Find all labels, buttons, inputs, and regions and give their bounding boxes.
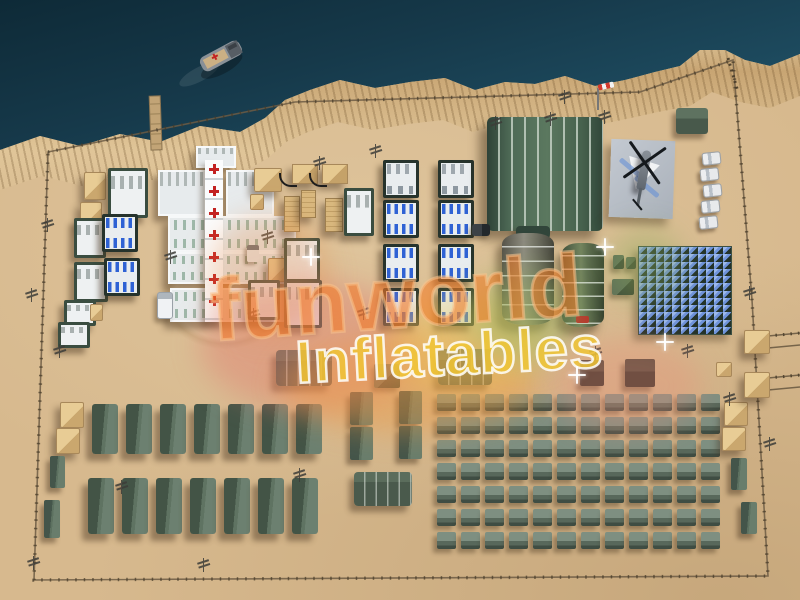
supply-crate [254, 168, 282, 192]
solar-panel [639, 327, 647, 334]
barrack-tent [228, 404, 254, 454]
solar-panel [656, 305, 664, 312]
camp-tent [605, 440, 624, 457]
solar-panel [706, 247, 714, 254]
camp-tent [533, 463, 552, 480]
solar-panel [647, 254, 655, 261]
helipad [609, 139, 676, 219]
ops-tent [108, 168, 148, 218]
light-pole [557, 90, 571, 104]
camp-tent [461, 417, 480, 434]
supply-crate [84, 172, 106, 200]
barrack-tent [194, 404, 220, 454]
solar-panel [706, 298, 714, 305]
camp-tent [533, 486, 552, 503]
solar-panel [647, 305, 655, 312]
light-pole [597, 110, 611, 124]
camp-tent [605, 463, 624, 480]
sparkle-star [656, 333, 674, 351]
solar-panel [698, 283, 706, 290]
solar-panel [714, 298, 722, 305]
green-container [626, 257, 636, 269]
camp-tent [509, 440, 528, 457]
camp-tent [533, 440, 552, 457]
solar-panel [723, 305, 731, 312]
camp-tent [557, 509, 576, 526]
red-cross-marking [209, 186, 219, 196]
camp-tent [629, 486, 648, 503]
solar-panel [681, 298, 689, 305]
solar-panel [672, 327, 680, 334]
solar-panel [647, 262, 655, 269]
camp-tent [557, 394, 576, 411]
solar-panel [714, 254, 722, 261]
solar-panel [698, 254, 706, 261]
solar-panel [639, 262, 647, 269]
camp-tent [533, 532, 552, 549]
light-pole [312, 156, 326, 170]
solar-panel [681, 312, 689, 319]
small-tent [50, 456, 65, 488]
camp-tent [677, 532, 696, 549]
camp-tent [485, 532, 504, 549]
solar-panel [672, 276, 680, 283]
hospital-corridor [205, 160, 223, 322]
solar-panel [672, 262, 680, 269]
solar-panel [714, 327, 722, 334]
barrack-tent [156, 478, 182, 534]
solar-panel [656, 262, 664, 269]
solar-panel [664, 247, 672, 254]
light-pole [52, 344, 66, 358]
solar-panel [647, 291, 655, 298]
solar-panel [714, 247, 722, 254]
dark-container [580, 360, 604, 386]
solar-panel [698, 298, 706, 305]
solar-panel [656, 247, 664, 254]
camp-tent [509, 417, 528, 434]
camp-tent [461, 509, 480, 526]
green-container [612, 279, 634, 295]
small-tent [44, 500, 60, 538]
solar-panel [723, 298, 731, 305]
camp-tent [677, 509, 696, 526]
solar-panel [698, 262, 706, 269]
solar-panel [689, 262, 697, 269]
camp-tent [461, 532, 480, 549]
light-pole [762, 437, 776, 451]
camp-tent [605, 532, 624, 549]
solar-panel [647, 298, 655, 305]
camp-tent [437, 394, 456, 411]
medical-bed-tent [102, 214, 138, 252]
solar-panel [723, 276, 731, 283]
solar-panel [639, 320, 647, 327]
solar-panel [689, 269, 697, 276]
barrack-tent [190, 478, 216, 534]
camp-tent [701, 417, 720, 434]
supply-crate [722, 427, 746, 451]
solar-panel [714, 269, 722, 276]
barrack-tent [92, 404, 118, 454]
solar-panel [647, 276, 655, 283]
camp-tent [677, 417, 696, 434]
storage-hangar [487, 117, 603, 231]
solar-panel [647, 283, 655, 290]
solar-panel [706, 276, 714, 283]
command-tent [438, 160, 474, 198]
camp-tent [437, 440, 456, 457]
camp-tent [701, 440, 720, 457]
green-container [613, 255, 624, 269]
light-pole [40, 218, 54, 232]
camp-tent [461, 463, 480, 480]
camp-tent [533, 394, 552, 411]
solar-panel [706, 262, 714, 269]
solar-panel [664, 262, 672, 269]
white-suv [702, 183, 722, 198]
solar-panel [689, 320, 697, 327]
solar-panel [689, 298, 697, 305]
camp-tent [533, 417, 552, 434]
solar-panel [664, 312, 672, 319]
solar-panel [672, 291, 680, 298]
camp-tent [557, 417, 576, 434]
cargo-pallet [284, 196, 300, 232]
camp-tent [461, 440, 480, 457]
solar-panel [664, 283, 672, 290]
solar-panel [672, 312, 680, 319]
solar-panel [681, 327, 689, 334]
windsock-pole [597, 88, 599, 110]
solar-panel [723, 327, 731, 334]
light-pole [114, 480, 128, 494]
camp-tent [557, 532, 576, 549]
solar-panel [656, 269, 664, 276]
solar-panel [664, 276, 672, 283]
red-cross-marking [209, 252, 219, 262]
solar-panel [689, 283, 697, 290]
light-pole [163, 250, 177, 264]
solar-panel [689, 247, 697, 254]
solar-panel [689, 305, 697, 312]
solar-panel [714, 262, 722, 269]
solar-panel [723, 254, 731, 261]
barrack-tent [292, 478, 318, 534]
light-pole [368, 144, 382, 158]
solar-panel [714, 283, 722, 290]
camp-tent [653, 486, 672, 503]
solar-panel [672, 298, 680, 305]
camp-tent [485, 440, 504, 457]
solar-panel [672, 247, 680, 254]
solar-panel [681, 291, 689, 298]
light-pole [260, 230, 274, 244]
solar-panel [698, 312, 706, 319]
solar-panel [672, 283, 680, 290]
solar-panel [647, 312, 655, 319]
light-pole [680, 344, 694, 358]
camp-tent [437, 532, 456, 549]
solar-panel [639, 291, 647, 298]
light-pole [26, 556, 40, 570]
solar-panel [723, 320, 731, 327]
barrack-tent [258, 478, 284, 534]
white-suv [700, 199, 720, 214]
solar-panel [656, 327, 664, 334]
medical-tent [284, 280, 322, 328]
solar-panel [681, 283, 689, 290]
camp-tent [701, 463, 720, 480]
camp-tent [485, 463, 504, 480]
squad-tent [350, 392, 373, 425]
barrack-tent [262, 404, 288, 454]
medical-bed-tent [438, 200, 474, 238]
white-suv [699, 167, 719, 182]
solar-panel [639, 283, 647, 290]
command-tent [383, 160, 419, 198]
camp-aerial-render: funworld Inflatables [0, 0, 800, 600]
camp-tent [629, 417, 648, 434]
solar-panel [681, 276, 689, 283]
forklift [90, 304, 103, 321]
solar-panel [647, 327, 655, 334]
solar-panel [656, 312, 664, 319]
solar-panel [639, 269, 647, 276]
arched-hangar [562, 243, 604, 327]
solar-panel [664, 298, 672, 305]
solar-panel [723, 312, 731, 319]
red-cross-marking [209, 296, 219, 306]
camp-tent [581, 486, 600, 503]
solar-panel [647, 247, 655, 254]
light-pole [488, 116, 502, 130]
camp-tent [581, 532, 600, 549]
helicopter [617, 139, 667, 217]
mess-tent [276, 350, 332, 386]
camp-tent [701, 486, 720, 503]
camp-tent [629, 440, 648, 457]
light-pole [722, 392, 736, 406]
camp-tent [485, 509, 504, 526]
white-suv [701, 151, 721, 166]
solar-panel [706, 327, 714, 334]
solar-panel [698, 269, 706, 276]
camp-tent [485, 394, 504, 411]
small-tent [731, 458, 747, 490]
solar-panel [664, 327, 672, 334]
camp-tent [653, 532, 672, 549]
solar-panel [698, 327, 706, 334]
solar-panel [698, 276, 706, 283]
camp-tent [629, 509, 648, 526]
mess-tent [354, 472, 412, 506]
solar-panel [672, 305, 680, 312]
camp-tent [653, 394, 672, 411]
cargo-pallet [325, 198, 343, 232]
medical-bed-tent [383, 244, 419, 282]
solar-panel [698, 305, 706, 312]
dark-container [625, 359, 655, 387]
solar-panel [714, 312, 722, 319]
solar-panel [681, 262, 689, 269]
camp-tent [485, 486, 504, 503]
camp-tent [605, 486, 624, 503]
small-tent [741, 502, 757, 534]
solar-panel [664, 269, 672, 276]
solar-panel [706, 254, 714, 261]
solar-panel [656, 298, 664, 305]
squad-tent [399, 391, 422, 424]
camp-tent [437, 417, 456, 434]
gate-platform [744, 372, 770, 398]
solar-panel [639, 312, 647, 319]
camp-tent [509, 394, 528, 411]
solar-panel [714, 320, 722, 327]
gate-platform [744, 330, 770, 354]
light-pole [543, 112, 557, 126]
camp-tent [509, 486, 528, 503]
arched-hangar [502, 233, 554, 325]
solar-panel [706, 283, 714, 290]
solar-panel [723, 283, 731, 290]
solar-panel [664, 254, 672, 261]
solar-panel [689, 276, 697, 283]
camp-tent [605, 417, 624, 434]
mess-tent [438, 349, 492, 385]
solar-panel-array [638, 246, 732, 335]
solar-panel [698, 291, 706, 298]
solar-panel [706, 320, 714, 327]
medical-bed-tent [438, 244, 474, 282]
solar-panel [656, 254, 664, 261]
solar-panel [714, 305, 722, 312]
camp-tent [701, 394, 720, 411]
solar-panel [647, 269, 655, 276]
solar-panel [639, 305, 647, 312]
camp-tent [653, 440, 672, 457]
guard-tent [676, 108, 708, 134]
parked-car [472, 224, 490, 236]
camp-tent [629, 463, 648, 480]
camp-tent [677, 440, 696, 457]
solar-panel [723, 247, 731, 254]
solar-panel [664, 305, 672, 312]
camp-tent [581, 417, 600, 434]
hospital-wing-left [158, 170, 206, 216]
camp-tent [461, 394, 480, 411]
solar-panel [681, 305, 689, 312]
red-cross-marking [209, 274, 219, 284]
supply-crate [56, 428, 80, 454]
barrack-tent [88, 478, 114, 534]
light-pole [356, 306, 370, 320]
solar-panel [681, 320, 689, 327]
solar-panel [681, 247, 689, 254]
solar-panel [723, 262, 731, 269]
camp-tent [461, 486, 480, 503]
camp-tent [581, 509, 600, 526]
solar-panel [656, 283, 664, 290]
ambulance-van [157, 292, 173, 319]
light-pole [742, 286, 756, 300]
camp-tent [701, 509, 720, 526]
solar-panel [698, 320, 706, 327]
solar-panel [689, 291, 697, 298]
solar-panel [672, 320, 680, 327]
solar-panel [664, 291, 672, 298]
solar-panel [706, 269, 714, 276]
camp-tent [653, 463, 672, 480]
barrack-tent [224, 478, 250, 534]
solar-panel [706, 305, 714, 312]
white-suv [698, 215, 718, 230]
light-pole [24, 288, 38, 302]
supply-truck [247, 245, 259, 262]
equipment-tent [74, 262, 108, 302]
hospital-ward [168, 216, 296, 252]
medical-bed-tent [383, 288, 419, 326]
solar-panel [639, 298, 647, 305]
light-pole [588, 346, 602, 360]
camp-tent [509, 509, 528, 526]
camp-tent [677, 463, 696, 480]
light-pole [196, 558, 210, 572]
camp-tent [581, 463, 600, 480]
camp-tent [653, 417, 672, 434]
medical-tent [284, 238, 320, 282]
camp-tent [557, 440, 576, 457]
camp-tent [509, 463, 528, 480]
camp-tent [605, 509, 624, 526]
barrack-tent [126, 404, 152, 454]
solar-panel [647, 320, 655, 327]
squad-tent [350, 427, 373, 460]
green-container [374, 364, 400, 388]
camp-tent [437, 486, 456, 503]
solar-panel [664, 320, 672, 327]
red-vehicle [576, 316, 589, 323]
solar-panel [714, 276, 722, 283]
cargo-pallet [301, 190, 316, 218]
barrack-tent [296, 404, 322, 454]
medical-bed-tent [383, 200, 419, 238]
storage-tent [344, 188, 374, 236]
medical-bed-tent [104, 258, 140, 296]
camp-tent [437, 463, 456, 480]
supply-crate [716, 362, 732, 377]
solar-panel [689, 312, 697, 319]
solar-panel [639, 254, 647, 261]
red-cross-marking [209, 164, 219, 174]
solar-panel [639, 247, 647, 254]
solar-panel [656, 276, 664, 283]
supply-crate [60, 402, 84, 428]
solar-panel [656, 320, 664, 327]
camp-tent [629, 394, 648, 411]
camp-tent [677, 394, 696, 411]
solar-panel [714, 291, 722, 298]
camp-tent [509, 532, 528, 549]
medical-bed-tent [438, 288, 474, 326]
red-cross-marking [209, 208, 219, 218]
camp-tent [581, 394, 600, 411]
camp-tent [557, 486, 576, 503]
camp-tent [605, 394, 624, 411]
solar-panel [672, 269, 680, 276]
camp-tent [653, 509, 672, 526]
red-cross-marking [209, 230, 219, 240]
